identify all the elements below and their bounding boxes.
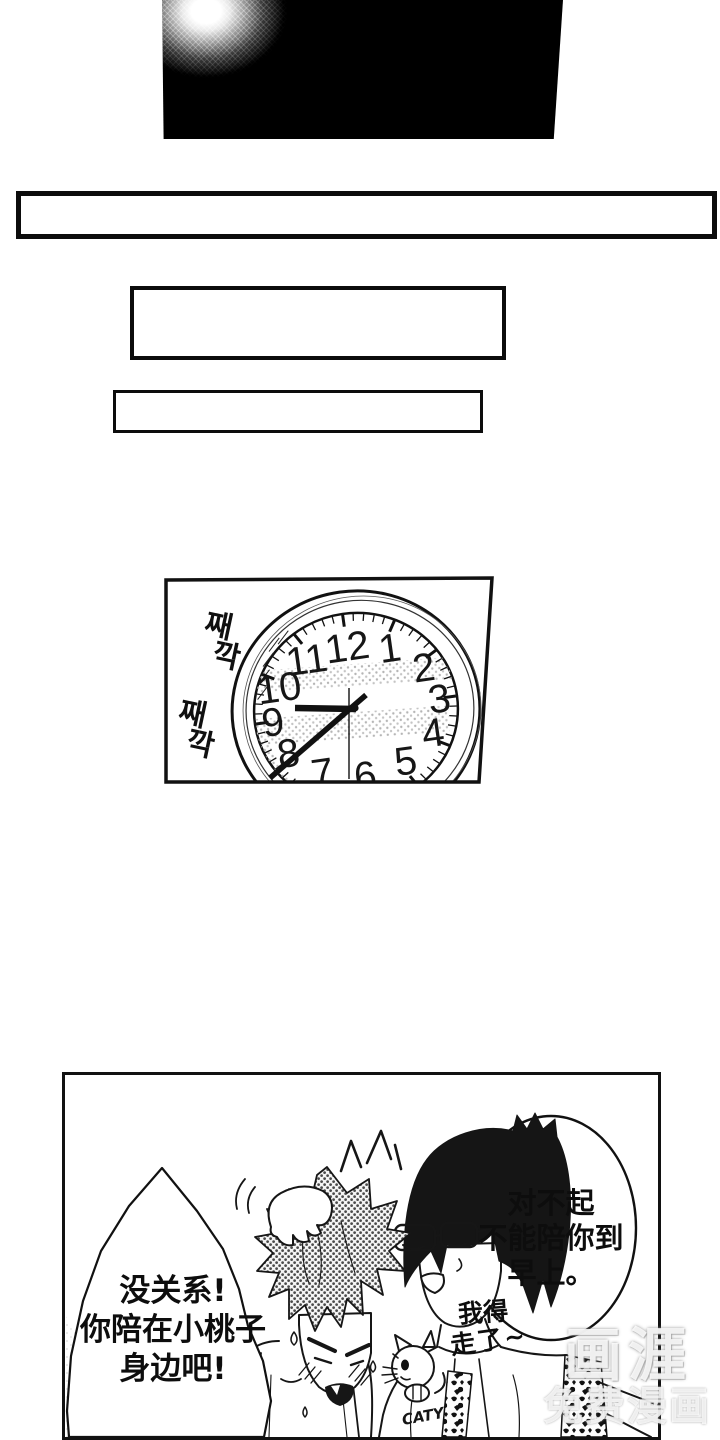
cat-head	[392, 1346, 434, 1388]
left-bubble-line-2: 你陪在小桃子	[80, 1311, 266, 1350]
right-bubble-line-3: 早上。	[468, 1256, 634, 1291]
manga-page: 12 1 2 3 4 5 6 7 8 9 10 11	[0, 0, 720, 1440]
right-bubble-line-1: 对不起	[468, 1186, 634, 1221]
face	[299, 1313, 371, 1394]
crosshatch-glow	[162, 0, 563, 139]
cat-eye	[401, 1360, 409, 1371]
left-bubble-text: 没关系! 你陪在小桃子 身边吧!	[80, 1272, 266, 1389]
left-bubble-line-3: 身边吧!	[80, 1350, 266, 1389]
clock-number-12: 12	[322, 623, 372, 673]
startle-marks	[341, 1131, 401, 1171]
cat-shirt-label: CATY	[401, 1404, 448, 1429]
glasses-bridge	[435, 1235, 441, 1236]
animal-print-strip-left	[442, 1371, 472, 1437]
narration-box-2	[130, 286, 506, 360]
clock-panel: 12 1 2 3 4 5 6 7 8 9 10 11	[160, 574, 500, 786]
right-bubble-text: 对不起 不能陪你到 早上。	[468, 1186, 634, 1291]
clock-center	[351, 704, 358, 711]
cat-tail	[435, 1373, 445, 1393]
cat-paw	[405, 1385, 429, 1402]
clock-number-11: 11	[283, 636, 330, 685]
watermark-tagline: 免费漫画	[543, 1374, 711, 1432]
left-bubble-line-1: 没关系!	[80, 1272, 266, 1311]
narration-box-1	[16, 191, 717, 239]
right-bubble-line-2: 不能陪你到	[468, 1221, 634, 1256]
spiky-hair	[255, 1167, 411, 1331]
narration-box-3	[113, 390, 483, 433]
flashback-panel	[162, 0, 563, 139]
motion-arcs	[236, 1179, 255, 1213]
